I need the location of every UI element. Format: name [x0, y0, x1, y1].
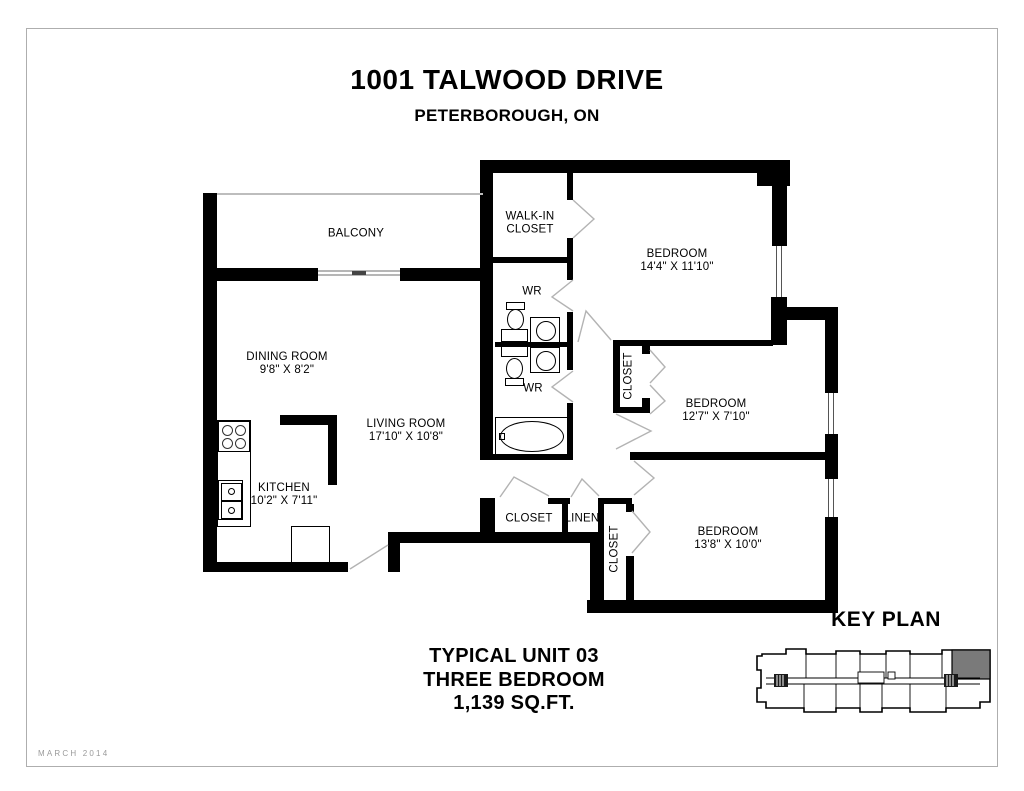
fridge-icon — [291, 526, 330, 565]
wall — [825, 517, 838, 607]
wall — [388, 532, 400, 572]
bedroom3-label: BEDROOM 13'8" X 10'0" — [694, 526, 762, 552]
bedroom2-closet-door-swing — [650, 385, 665, 414]
room-dims: 9'8" X 8'2" — [246, 364, 327, 377]
wr1-label: WR — [522, 286, 542, 299]
dining-room-label: DINING ROOM 9'8" X 8'2" — [246, 351, 327, 377]
toilet-icon — [505, 357, 523, 385]
room-dims: 17'10" X 10'8" — [367, 431, 446, 444]
vanity-counter — [501, 329, 528, 342]
wall — [203, 193, 217, 572]
wall — [626, 556, 634, 602]
wall — [493, 257, 573, 263]
balcony-sliding-door — [318, 271, 400, 275]
room-name: LINEN — [565, 513, 600, 526]
wall — [613, 340, 773, 346]
wall — [388, 532, 604, 543]
wall — [613, 342, 620, 413]
walkin-closet-door-swing — [573, 200, 594, 238]
bedroom1-door-swing — [578, 311, 611, 342]
wall — [642, 342, 650, 354]
key-plan-title: KEY PLAN — [810, 608, 962, 632]
bedroom2-window — [825, 393, 838, 434]
room-name: DINING ROOM — [246, 351, 327, 364]
unit-type: THREE BEDROOM — [378, 669, 650, 693]
bedroom3-window — [825, 479, 838, 517]
bedroom2-door-swing — [616, 414, 651, 449]
bedroom3-closet-door-swing — [632, 511, 650, 553]
balcony-label: BALCONY — [328, 228, 384, 241]
wall — [483, 160, 790, 173]
sink-icon — [530, 347, 560, 373]
sliding-door-handle — [352, 271, 366, 275]
wall — [590, 532, 604, 607]
wall — [567, 173, 573, 200]
wr2-door-swing — [552, 371, 573, 402]
wall — [772, 173, 787, 246]
wall — [825, 318, 838, 393]
bedroom2-closet-door-swing — [650, 350, 665, 383]
room-name: LIVING ROOM — [367, 418, 446, 431]
key-plan-drawing — [748, 642, 998, 722]
kitchen-sink-icon — [218, 480, 243, 520]
room-name: BEDROOM — [694, 526, 762, 539]
entry-door-swing — [350, 545, 388, 569]
room-name: BEDROOM — [682, 398, 750, 411]
wall — [480, 160, 493, 460]
wall — [480, 498, 495, 532]
wall — [328, 415, 337, 485]
living-room-label: LIVING ROOM 17'10" X 10'8" — [367, 418, 446, 444]
hall-closet-door-swing — [500, 477, 549, 497]
room-name: CLOSET — [609, 525, 622, 572]
room-name: BALCONY — [328, 228, 384, 241]
wall — [400, 268, 483, 281]
hall-closet-label: CLOSET — [505, 513, 552, 526]
bedroom3-closet-label: CLOSET — [609, 525, 622, 572]
bedroom3-door-swing — [634, 461, 654, 495]
wall — [587, 600, 838, 613]
wall — [630, 452, 838, 460]
bedroom2-label: BEDROOM 12'7" X 7'10" — [682, 398, 750, 424]
wall — [567, 312, 573, 370]
wall — [626, 504, 634, 512]
wall — [771, 297, 787, 345]
toilet-icon — [506, 302, 524, 330]
bathtub-icon — [495, 417, 568, 455]
room-name: CLOSET — [505, 513, 552, 526]
bedroom1-label: BEDROOM 14'4" X 11'10" — [640, 248, 713, 274]
bedroom2-closet-label: CLOSET — [623, 352, 636, 399]
date-stamp: MARCH 2014 — [38, 749, 109, 758]
kitchen-label: KITCHEN 10'2" X 7'11" — [251, 482, 318, 508]
bedroom1-window — [772, 246, 787, 297]
unit-summary: TYPICAL UNIT 03 THREE BEDROOM 1,139 SQ.F… — [378, 645, 650, 716]
walkin-closet-label: WALK-IN CLOSET — [491, 211, 569, 236]
wr2-label: WR — [523, 383, 543, 396]
floor-plan-page: 1001 TALWOOD DRIVE PETERBOROUGH, ON — [0, 0, 1024, 791]
wr1-door-swing — [552, 280, 573, 311]
stove-icon — [218, 421, 250, 452]
room-dims: 13'8" X 10'0" — [694, 539, 762, 552]
room-name: CLOSET — [623, 352, 636, 399]
wall — [567, 238, 573, 280]
wall — [642, 398, 650, 408]
room-name: WR — [523, 383, 543, 396]
wall — [203, 268, 318, 281]
room-name: WR — [522, 286, 542, 299]
room-dims: 10'2" X 7'11" — [251, 495, 318, 508]
linen-closet-label: LINEN — [565, 513, 600, 526]
unit-number: TYPICAL UNIT 03 — [378, 645, 650, 669]
room-name: KITCHEN — [251, 482, 318, 495]
sink-icon — [530, 317, 560, 343]
vanity-counter — [501, 344, 528, 357]
linen-door-swing — [571, 479, 599, 497]
room-dims: 12'7" X 7'10" — [682, 411, 750, 424]
room-name: BEDROOM — [640, 248, 713, 261]
room-name: WALK-IN CLOSET — [491, 211, 569, 236]
room-dims: 14'4" X 11'10" — [640, 261, 713, 274]
unit-area: 1,139 SQ.FT. — [378, 692, 650, 716]
